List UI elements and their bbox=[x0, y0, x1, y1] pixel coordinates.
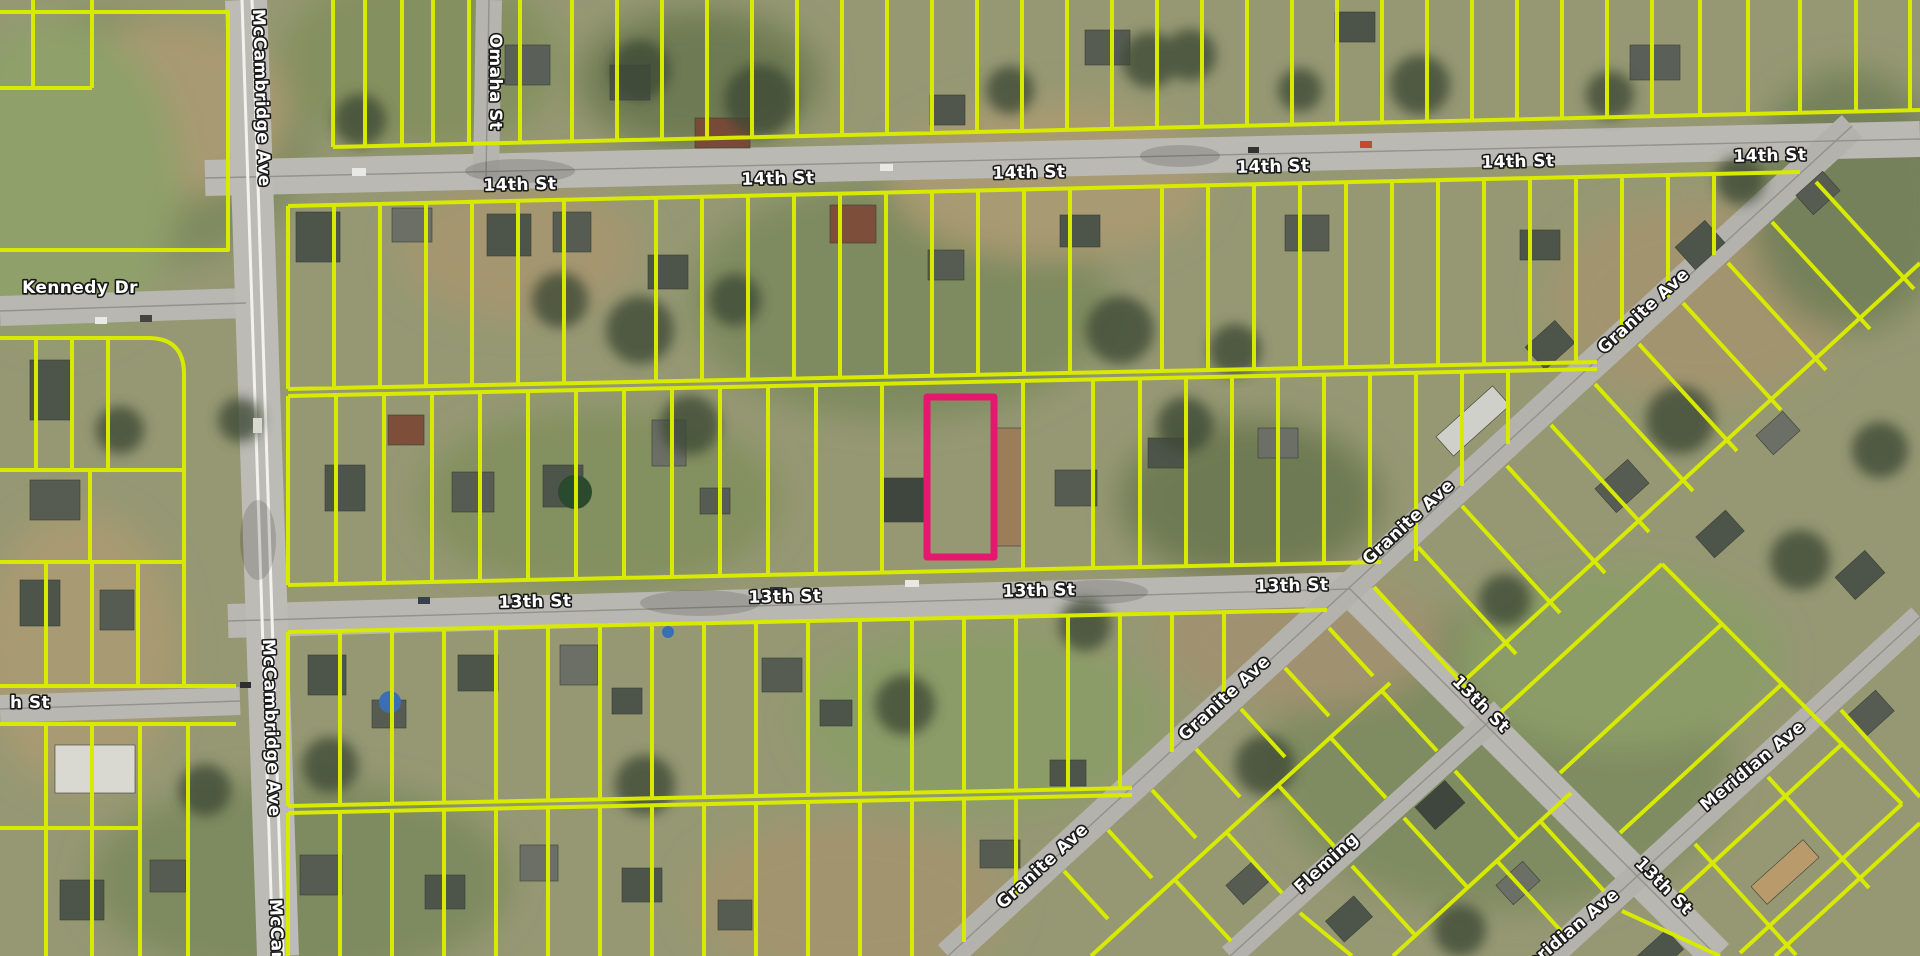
street-label-13th-st-4: 13th St bbox=[1255, 575, 1328, 597]
street-label-west-13th-st-partial: h St bbox=[10, 693, 50, 713]
street-label-13th-st-2: 13th St bbox=[748, 586, 821, 608]
street-label-14th-st-6: 14th St bbox=[1733, 145, 1806, 167]
street-label-14th-st-4: 14th St bbox=[1236, 156, 1309, 178]
aerial-parcel-map[interactable]: Kennedy Dr Omaha St McCambridge Ave McCa… bbox=[0, 0, 1920, 956]
street-label-14th-st-1: 14th St bbox=[483, 174, 556, 196]
street-label-14th-st-5: 14th St bbox=[1481, 151, 1554, 173]
pool bbox=[662, 626, 674, 638]
street-label-14th-st-2: 14th St bbox=[741, 168, 814, 190]
street-label-omaha-st: Omaha St bbox=[485, 34, 505, 131]
street-label-13th-st-1: 13th St bbox=[498, 591, 571, 613]
street-label-13th-st-3: 13th St bbox=[1002, 580, 1075, 602]
street-label-14th-st-3: 14th St bbox=[992, 162, 1065, 184]
street-label-kennedy-dr: Kennedy Dr bbox=[22, 278, 138, 298]
